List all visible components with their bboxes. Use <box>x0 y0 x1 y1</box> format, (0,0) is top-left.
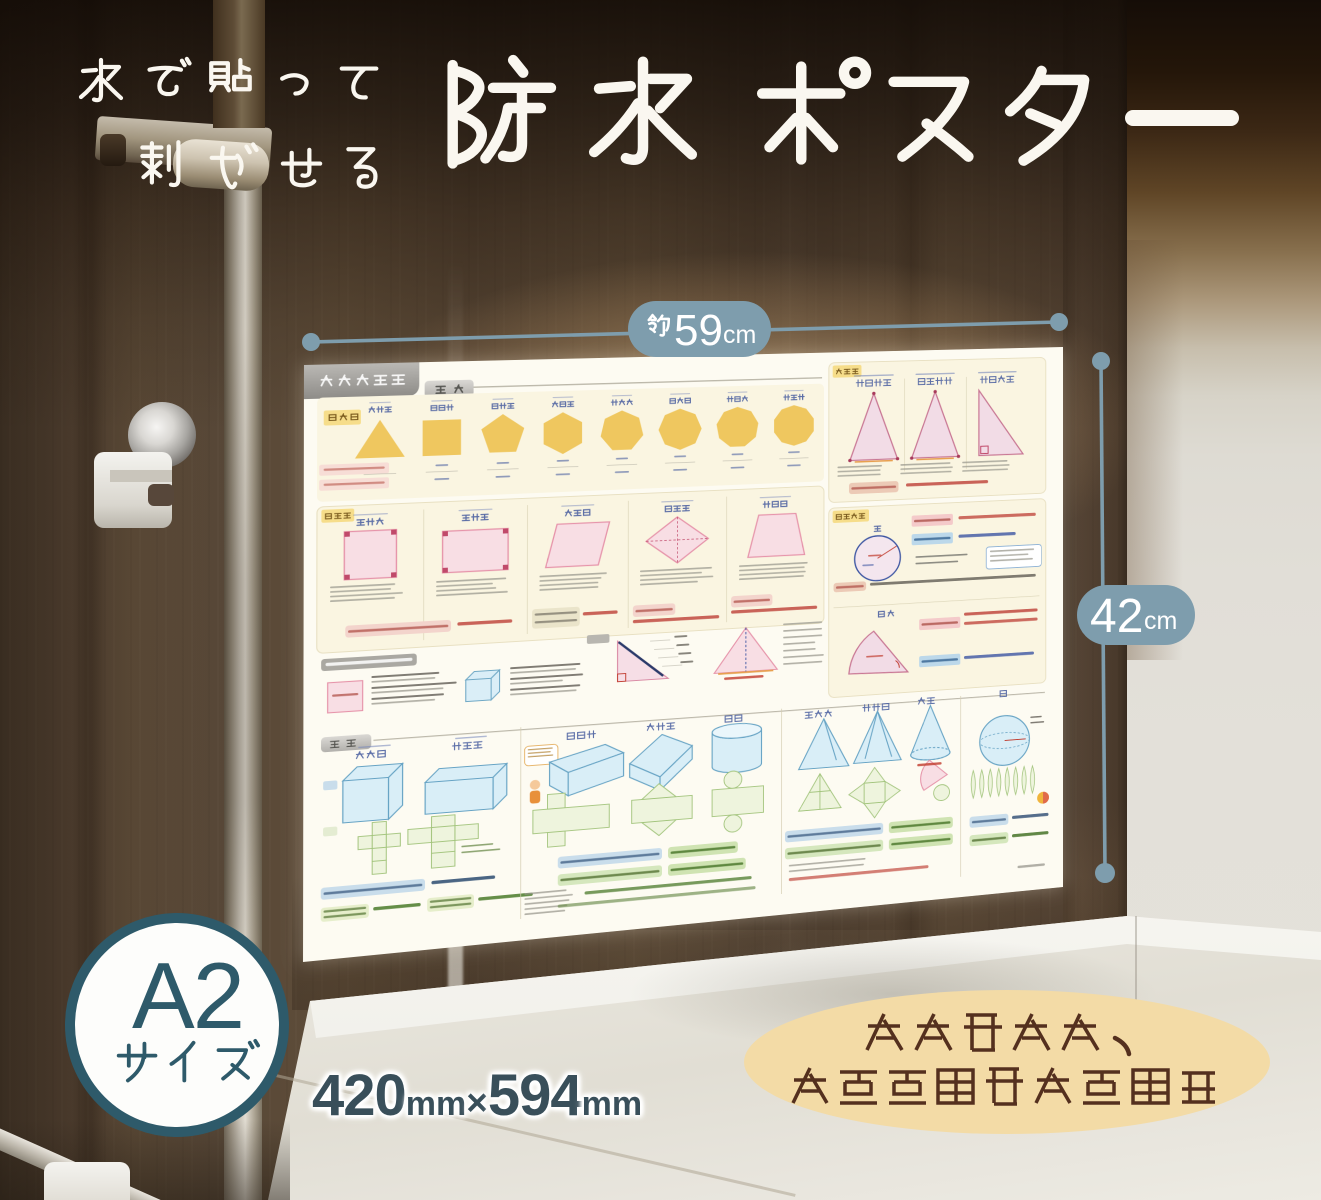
svg-text:cm: cm <box>723 321 756 349</box>
svg-text:cm: cm <box>1144 607 1177 635</box>
svg-text:A2: A2 <box>132 943 243 1048</box>
svg-text:59: 59 <box>674 306 723 355</box>
svg-text:42: 42 <box>1090 590 1143 643</box>
